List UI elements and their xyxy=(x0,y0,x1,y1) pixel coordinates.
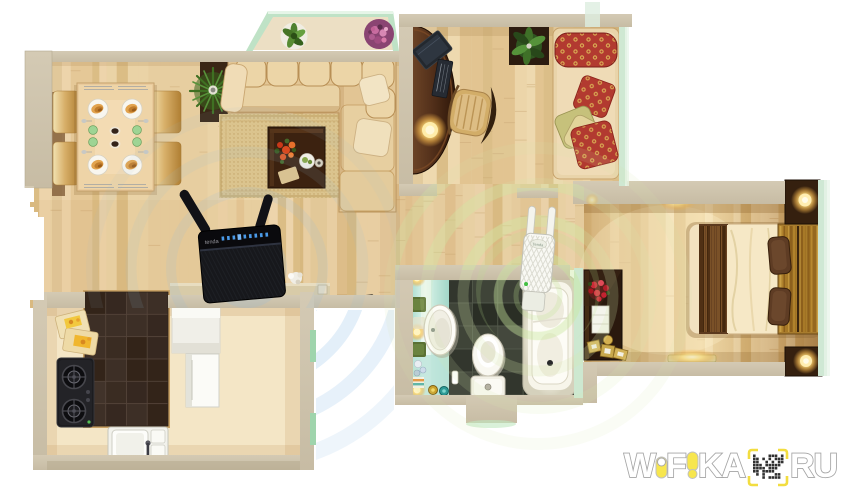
svg-text:KA: KA xyxy=(698,447,746,485)
svg-text:tenda: tenda xyxy=(205,239,220,246)
svg-text:Tenda: Tenda xyxy=(532,241,544,247)
svg-text:W: W xyxy=(624,447,657,485)
svg-text:RU: RU xyxy=(790,447,837,485)
svg-text:F: F xyxy=(666,447,686,485)
